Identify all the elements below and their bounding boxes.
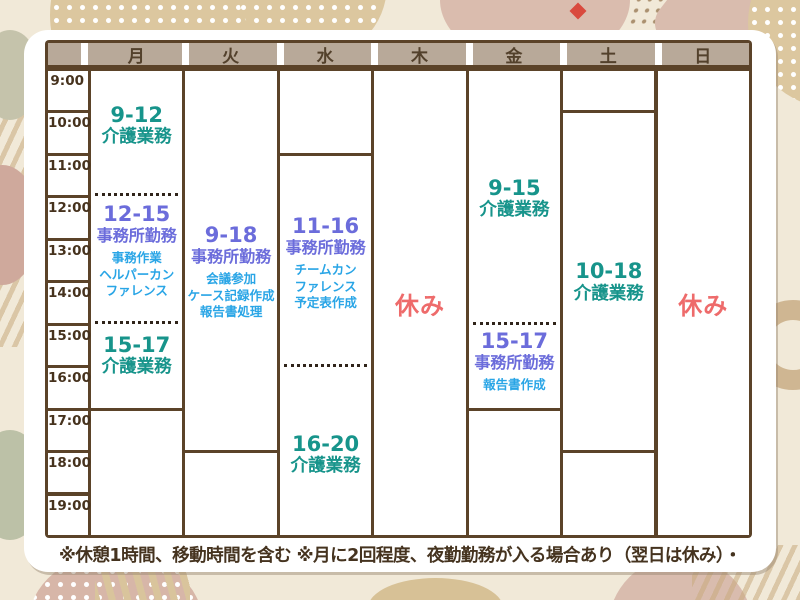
block-divider — [95, 321, 178, 324]
block-divider — [284, 364, 367, 367]
time-label-1400: 14:00 — [48, 283, 88, 322]
mon-empty-cell — [91, 411, 182, 535]
day-header-sat: 土 — [563, 43, 654, 65]
sat-schedule-cell: 10-18 介護業務 — [563, 113, 654, 450]
time-label-1600: 16:00 — [48, 368, 88, 407]
time-label-1200: 12:00 — [48, 198, 88, 237]
block-details: 会議参加 ケース記録作成 報告書処理 — [185, 271, 276, 321]
day-off-label: 休み — [395, 286, 445, 321]
block-label: 事務所勤務 — [185, 247, 276, 266]
wed-empty-cell — [280, 71, 371, 153]
sun-dayoff-cell: 休み — [658, 71, 749, 535]
day-header-mon: 月 — [91, 43, 182, 65]
day-header-tue: 火 — [185, 43, 276, 65]
block-time: 9-15 — [469, 176, 560, 200]
day-off-label: 休み — [678, 286, 728, 321]
block-time: 15-17 — [91, 333, 182, 357]
time-label-1000: 10:00 — [48, 113, 88, 152]
sat-empty-cell-bottom — [563, 453, 654, 535]
time-label-1900: 19:00 — [48, 496, 88, 536]
wed-schedule-cell: 11-16 事務所勤務 チームカン ファレンス 予定表作成 16-20 介護業務 — [280, 156, 371, 535]
block-time: 16-20 — [280, 432, 371, 456]
tue-empty-cell — [185, 453, 276, 535]
block-label: 介護業務 — [91, 357, 182, 378]
detail-line: ファレンス — [280, 279, 371, 296]
block-label: 介護業務 — [469, 200, 560, 221]
thu-dayoff-cell: 休み — [374, 71, 465, 535]
detail-line: 事務作業 — [91, 250, 182, 267]
sat-empty-cell-top — [563, 71, 654, 110]
block-label: 介護業務 — [563, 284, 654, 305]
detail-line: 報告書処理 — [185, 304, 276, 321]
block-time: 15-17 — [469, 329, 560, 353]
day-header-thu: 木 — [374, 43, 465, 65]
tue-schedule-cell: 9-18 事務所勤務 会議参加 ケース記録作成 報告書処理 — [185, 71, 276, 450]
detail-line: チームカン — [280, 262, 371, 279]
fri-care-block: 9-15 介護業務 — [469, 176, 560, 221]
block-time: 9-18 — [185, 223, 276, 247]
day-header-fri: 金 — [469, 43, 560, 65]
time-label-1800: 18:00 — [48, 453, 88, 492]
detail-line: ファレンス — [91, 283, 182, 300]
block-label: 事務所勤務 — [280, 238, 371, 257]
time-label-1100: 11:00 — [48, 156, 88, 195]
sat-care-block: 10-18 介護業務 — [563, 259, 654, 304]
block-details: 報告書作成 — [469, 377, 560, 394]
time-label-0900: 9:00 — [48, 71, 88, 110]
block-details: 事務作業 ヘルパーカン ファレンス — [91, 250, 182, 300]
time-label-1300: 13:00 — [48, 241, 88, 280]
block-details: チームカン ファレンス 予定表作成 — [280, 262, 371, 312]
block-divider — [95, 193, 178, 196]
block-label: 介護業務 — [91, 127, 182, 148]
detail-line: ケース記録作成 — [185, 288, 276, 305]
fri-schedule-cell: 9-15 介護業務 15-17 事務所勤務 報告書作成 — [469, 71, 560, 408]
tue-office-block: 9-18 事務所勤務 会議参加 ケース記録作成 報告書処理 — [185, 223, 276, 321]
schedule-infographic: 月 火 水 木 金 土 日 9:00 10:00 11:00 12:00 13:… — [0, 0, 800, 600]
detail-line: 報告書作成 — [469, 377, 560, 394]
time-label-1500: 15:00 — [48, 326, 88, 365]
block-label: 事務所勤務 — [469, 353, 560, 372]
mon-care-block-1: 9-12 介護業務 — [91, 103, 182, 148]
block-time: 11-16 — [280, 214, 371, 238]
header-gap — [81, 43, 88, 65]
detail-line: 予定表作成 — [280, 295, 371, 312]
fri-empty-cell — [469, 411, 560, 535]
day-header-sun: 日 — [658, 43, 749, 65]
block-divider — [473, 322, 556, 325]
mon-schedule-cell: 9-12 介護業務 12-15 事務所勤務 事務作業 ヘルパーカン ファレンス … — [91, 71, 182, 408]
wed-care-block: 16-20 介護業務 — [280, 432, 371, 477]
detail-line: 会議参加 — [185, 271, 276, 288]
wed-office-block: 11-16 事務所勤務 チームカン ファレンス 予定表作成 — [280, 214, 371, 312]
tan-oval-decoration — [368, 578, 503, 600]
detail-line: ヘルパーカン — [91, 267, 182, 284]
time-label-1700: 17:00 — [48, 411, 88, 450]
schedule-footnote: ※休憩1時間、移動時間を含む ※月に2回程度、夜勤勤務が入る場合あり（翌日は休み… — [30, 542, 770, 567]
weekly-schedule-table: 月 火 水 木 金 土 日 9:00 10:00 11:00 12:00 13:… — [45, 40, 752, 538]
block-time: 9-12 — [91, 103, 182, 127]
block-label: 介護業務 — [280, 456, 371, 477]
mon-care-block-2: 15-17 介護業務 — [91, 333, 182, 378]
block-time: 12-15 — [91, 202, 182, 226]
block-label: 事務所勤務 — [91, 226, 182, 245]
block-time: 10-18 — [563, 259, 654, 283]
day-header-wed: 水 — [280, 43, 371, 65]
fri-office-block: 15-17 事務所勤務 報告書作成 — [469, 329, 560, 394]
mon-office-block: 12-15 事務所勤務 事務作業 ヘルパーカン ファレンス — [91, 202, 182, 300]
